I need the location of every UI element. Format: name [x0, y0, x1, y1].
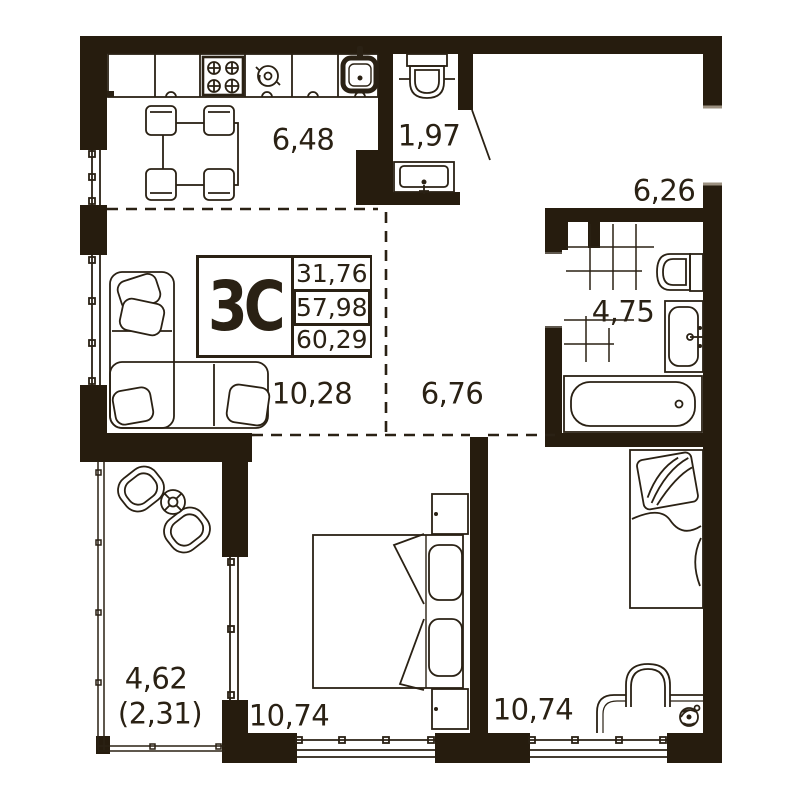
unit-areas: 31,76 57,98 60,29 [294, 258, 370, 355]
bedroom-left-area-label: 10,74 [249, 702, 330, 731]
window-balcony-bedroom [228, 557, 238, 700]
plant-icon [680, 706, 700, 727]
balcony-area-label: 4,62 [125, 665, 188, 694]
bathroom-door-jambs [545, 253, 562, 327]
wc-area-label: 1,97 [398, 122, 461, 151]
total-area-value: 57,98 [293, 289, 371, 326]
balcony-armchair-1 [112, 460, 170, 517]
unit-type-label: 3С [208, 266, 282, 347]
unit-stamp: 3С 31,76 57,98 60,29 [196, 255, 372, 358]
bathroom-toilet-icon [657, 254, 703, 291]
unit-type-cell: 3С [199, 258, 294, 355]
window-bottom-left [296, 737, 435, 757]
desk-chair-icon [626, 664, 670, 707]
window-left-lower [89, 255, 100, 385]
kitchen-sink-icon [343, 46, 376, 91]
window-left-upper [89, 150, 100, 205]
nightstand-top-icon [432, 494, 468, 534]
cooktop-vent-icon [256, 66, 280, 86]
floor-plan: 6,48 1,97 6,26 4,75 6,76 10,28 10,74 10,… [0, 0, 800, 800]
balcony-area-coeff-label: (2,31) [118, 700, 202, 729]
stove-icon [203, 57, 243, 95]
nightstand-bottom-icon [432, 689, 468, 729]
entrance-threshold-lines [703, 107, 722, 184]
bedroom-right-area-label: 10,74 [493, 696, 574, 725]
bathroom-area-label: 4,75 [592, 298, 655, 327]
balcony-table-icon [161, 490, 185, 514]
wc-door-swing [472, 110, 490, 160]
bathroom-vanity-icon [665, 301, 703, 372]
wc-toilet-icon [399, 54, 455, 98]
living-area-label: 10,28 [272, 380, 353, 409]
hallway-area-label: 6,76 [421, 380, 484, 409]
double-bed-icon [313, 534, 463, 690]
bath-tile-grid [564, 224, 654, 362]
entry-area-label: 6,26 [633, 177, 696, 206]
bathtub-icon [564, 376, 702, 432]
window-bottom-right [529, 737, 667, 757]
kitchen-area-label: 6,48 [272, 126, 335, 155]
single-bed-icon [630, 450, 703, 608]
wc-washbasin-icon [394, 162, 454, 194]
living-area-value: 31,76 [294, 258, 370, 291]
total-area-with-balcony-value: 60,29 [294, 324, 370, 355]
